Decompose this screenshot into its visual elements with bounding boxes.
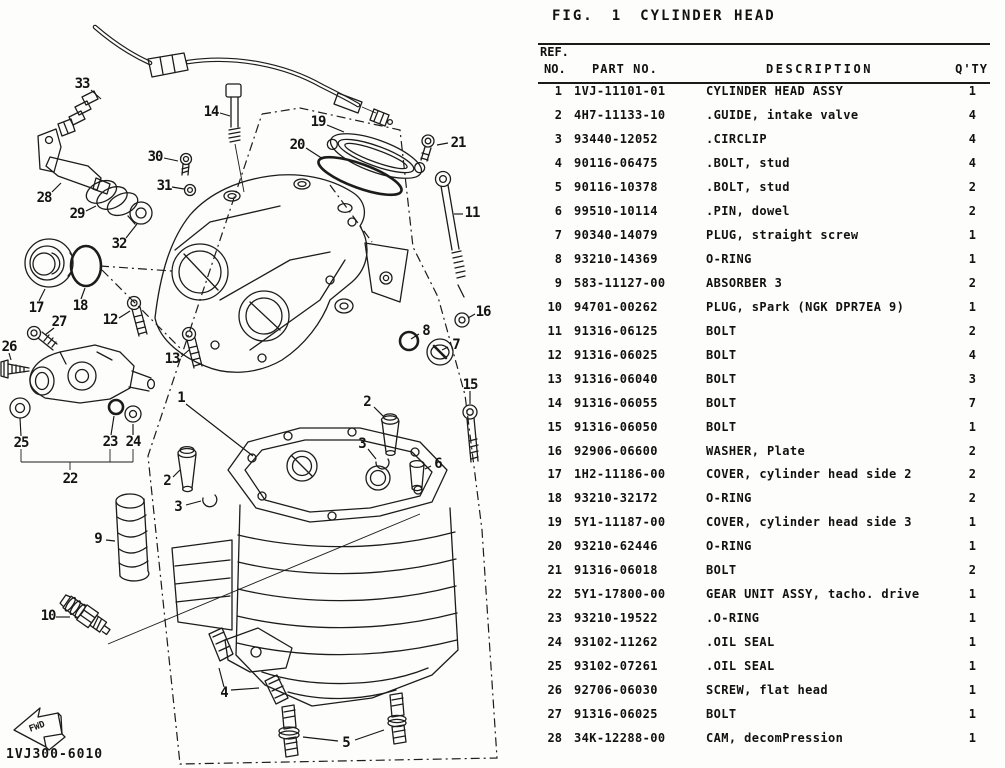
callout-label-14: 14 (204, 105, 219, 119)
table-row: 24H7-11133-10.GUIDE, intake valve4 (538, 103, 990, 127)
header-part-no: PART NO. (592, 62, 658, 76)
ref-cell: 26 (538, 683, 562, 697)
callout-label-18: 18 (73, 299, 88, 313)
part-cell: 5Y1-11187-00 (574, 515, 702, 529)
ref-cell: 20 (538, 539, 562, 553)
ref-cell: 28 (538, 731, 562, 745)
qty-cell: 4 (950, 108, 976, 122)
part-cell: 34K-12288-00 (574, 731, 702, 745)
callout-label-23: 23 (103, 435, 118, 449)
part-cell: 93102-07261 (574, 659, 702, 673)
table-row: 225Y1-17800-00GEAR UNIT ASSY, tacho. dri… (538, 582, 990, 606)
callout-label-8: 8 (422, 324, 429, 338)
drawing-code: 1VJ300-6010 (6, 747, 103, 762)
desc-cell: BOLT (706, 348, 950, 362)
figure-title: FIG.1CYLINDER HEAD (552, 8, 776, 24)
desc-cell: WASHER, Plate (706, 444, 950, 458)
part-cell: 99510-10114 (574, 204, 702, 218)
callout-label-2: 2 (363, 395, 370, 409)
qty-cell: 2 (950, 276, 976, 290)
screw-26 (1, 360, 29, 378)
qty-cell: 2 (950, 204, 976, 218)
part-cell: 90116-10378 (574, 180, 702, 194)
ref-cell: 19 (538, 515, 562, 529)
table-row: 1191316-06125BOLT2 (538, 319, 990, 343)
callout-label-32: 32 (112, 237, 127, 251)
bolt-27 (28, 327, 58, 351)
qty-cell: 1 (950, 611, 976, 625)
spring-29 (83, 170, 142, 226)
desc-cell: CAM, decomPression (706, 731, 950, 745)
absorber-9 (116, 494, 149, 581)
washer-16 (455, 313, 469, 327)
desc-cell: BOLT (706, 563, 950, 577)
callout-label-10: 10 (41, 609, 56, 623)
part-cell: 91316-06025 (574, 348, 702, 362)
desc-cell: O-RING (706, 491, 950, 505)
table-row: 1491316-06055BOLT7 (538, 391, 990, 415)
table-row: 2834K-12288-00CAM, decomPression1 (538, 726, 990, 750)
qty-cell: 1 (950, 515, 976, 529)
ref-cell: 5 (538, 180, 562, 194)
callout-label-3: 3 (358, 437, 365, 451)
callout-label-9: 9 (94, 532, 101, 546)
table-row: 171H2-11186-00COVER, cylinder head side … (538, 463, 990, 487)
qty-cell: 4 (950, 132, 976, 146)
ref-cell: 11 (538, 324, 562, 338)
desc-cell: BOLT (706, 372, 950, 386)
table-row: 699510-10114.PIN, dowel2 (538, 199, 990, 223)
table-row: 2093210-62446O-RING1 (538, 534, 990, 558)
parts-rows: 11VJ-11101-01CYLINDER HEAD ASSY124H7-111… (538, 80, 990, 750)
part-cell: 91316-06125 (574, 324, 702, 338)
callout-label-28: 28 (37, 191, 52, 205)
ref-cell: 3 (538, 132, 562, 146)
part-cell: 90340-14079 (574, 228, 702, 242)
qty-cell: 2 (950, 444, 976, 458)
rocker-cover-housing (155, 175, 408, 372)
ref-cell: 23 (538, 611, 562, 625)
bolt-21 (421, 135, 434, 161)
stud-4b (265, 675, 288, 704)
stud-5b (388, 693, 406, 744)
cylinder-head-fins (236, 505, 458, 706)
o-ring-23 (109, 400, 123, 414)
qty-cell: 1 (950, 731, 976, 745)
qty-cell: 2 (950, 563, 976, 577)
part-cell: 93210-19522 (574, 611, 702, 625)
o-ring-8 (400, 332, 418, 350)
table-row: 590116-10378.BOLT, stud2 (538, 175, 990, 199)
desc-cell: .OIL SEAL (706, 635, 950, 649)
table-row: 11VJ-11101-01CYLINDER HEAD ASSY1 (538, 80, 990, 104)
desc-cell: .BOLT, stud (706, 156, 950, 170)
desc-cell: CYLINDER HEAD ASSY (706, 84, 950, 98)
decompression-lever (38, 129, 110, 194)
qty-cell: 1 (950, 252, 976, 266)
callout-label-25: 25 (14, 436, 29, 450)
qty-cell: 7 (950, 396, 976, 410)
table-row: 790340-14079PLUG, straight screw1 (538, 223, 990, 247)
desc-cell: BOLT (706, 707, 950, 721)
desc-cell: ABSORBER 3 (706, 276, 950, 290)
ref-cell: 13 (538, 372, 562, 386)
table-row: 1291316-06025BOLT4 (538, 343, 990, 367)
qty-cell: 1 (950, 635, 976, 649)
ref-cell: 25 (538, 659, 562, 673)
ref-cell: 22 (538, 587, 562, 601)
desc-cell: BOLT (706, 420, 950, 434)
bolt-30 (181, 154, 192, 176)
callout-label-24: 24 (126, 435, 141, 449)
oil-seal-24 (125, 406, 141, 422)
qty-cell: 1 (950, 84, 976, 98)
part-cell: 1H2-11186-00 (574, 467, 702, 481)
desc-cell: .PIN, dowel (706, 204, 950, 218)
callout-label-19: 19 (311, 115, 326, 129)
part-cell: 93210-32172 (574, 491, 702, 505)
fwd-arrow-icon: FWD (14, 708, 65, 750)
table-row: 893210-14369O-RING1 (538, 247, 990, 271)
screw-plug-7 (427, 339, 453, 365)
seal-32 (130, 202, 152, 224)
decompression-cable (58, 27, 392, 136)
ref-cell: 21 (538, 563, 562, 577)
part-cell: 4H7-11133-10 (574, 108, 702, 122)
desc-cell: GEAR UNIT ASSY, tacho. drive (706, 587, 950, 601)
ref-cell: 8 (538, 252, 562, 266)
table-row: 2593102-07261.OIL SEAL1 (538, 654, 990, 678)
desc-cell: BOLT (706, 396, 950, 410)
table-row: 1692906-06600WASHER, Plate2 (538, 439, 990, 463)
part-cell: 92906-06600 (574, 444, 702, 458)
part-cell: 90116-06475 (574, 156, 702, 170)
ref-cell: 16 (538, 444, 562, 458)
washer-31 (185, 185, 196, 196)
part-cell: 91316-06050 (574, 420, 702, 434)
desc-cell: O-RING (706, 539, 950, 553)
leader-lines (9, 90, 475, 741)
fig-label: FIG. (552, 8, 594, 24)
table-row: 2191316-06018BOLT2 (538, 558, 990, 582)
valve-guide-2-left (178, 447, 196, 492)
table-row: 195Y1-11187-00COVER, cylinder head side … (538, 510, 990, 534)
ref-cell: 17 (538, 467, 562, 481)
part-cell: 1VJ-11101-01 (574, 84, 702, 98)
ref-cell: 12 (538, 348, 562, 362)
callout-label-4: 4 (220, 686, 227, 700)
callout-label-33: 33 (75, 77, 90, 91)
callout-label-29: 29 (70, 207, 85, 221)
header-ref-line1: REF. (540, 45, 569, 59)
table-row: 2791316-06025BOLT1 (538, 702, 990, 726)
o-ring-20 (315, 150, 406, 203)
ref-cell: 24 (538, 635, 562, 649)
ref-cell: 6 (538, 204, 562, 218)
tacho-gear-unit-22 (30, 345, 155, 403)
ref-cell: 18 (538, 491, 562, 505)
qty-cell: 1 (950, 228, 976, 242)
desc-cell: COVER, cylinder head side 3 (706, 515, 950, 529)
callout-label-27: 27 (52, 315, 67, 329)
header-ref-line2: NO. (544, 62, 566, 76)
cylinder-head-deck (228, 428, 447, 522)
callout-label-2: 2 (163, 474, 170, 488)
header-qty: Q'TY (955, 62, 988, 76)
qty-cell: 1 (950, 420, 976, 434)
table-row: 393440-12052.CIRCLIP4 (538, 127, 990, 151)
stud-5a (279, 705, 299, 757)
table-row: 2393210-19522.O-RING1 (538, 606, 990, 630)
desc-cell: PLUG, sPark (NGK DPR7EA 9) (706, 300, 950, 314)
qty-cell: 4 (950, 348, 976, 362)
part-cell: 93210-14369 (574, 252, 702, 266)
bolt-15 (463, 405, 478, 462)
qty-cell: 1 (950, 707, 976, 721)
ref-cell: 2 (538, 108, 562, 122)
side-cover-17 (25, 239, 73, 287)
callout-label-26: 26 (2, 340, 17, 354)
part-cell: 93440-12052 (574, 132, 702, 146)
part-cell: 92706-06030 (574, 683, 702, 697)
callout-label-5: 5 (342, 736, 349, 750)
desc-cell: .CIRCLIP (706, 132, 950, 146)
callout-label-7: 7 (452, 338, 459, 352)
bolt-13 (183, 328, 203, 369)
ref-cell: 1 (538, 84, 562, 98)
table-row: 1094701-00262PLUG, sPark (NGK DPR7EA 9)1 (538, 295, 990, 319)
part-cell: 583-11127-00 (574, 276, 702, 290)
part-cell: 91316-06055 (574, 396, 702, 410)
table-row: 1391316-06040BOLT3 (538, 367, 990, 391)
head-cover-plate-19 (324, 124, 429, 188)
callout-label-3: 3 (174, 500, 181, 514)
callout-label-16: 16 (476, 305, 491, 319)
table-row: 490116-06475.BOLT, stud4 (538, 151, 990, 175)
callout-label-1: 1 (177, 391, 184, 405)
qty-cell: 4 (950, 156, 976, 170)
ref-cell: 9 (538, 276, 562, 290)
desc-cell: BOLT (706, 324, 950, 338)
stud-4a (209, 628, 233, 661)
qty-cell: 2 (950, 467, 976, 481)
part-cell: 91316-06018 (574, 563, 702, 577)
callout-label-12: 12 (103, 313, 118, 327)
ref-cell: 14 (538, 396, 562, 410)
callout-label-15: 15 (463, 378, 478, 392)
desc-cell: PLUG, straight screw (706, 228, 950, 242)
qty-cell: 1 (950, 683, 976, 697)
qty-cell: 1 (950, 587, 976, 601)
ref-cell: 15 (538, 420, 562, 434)
desc-cell: SCREW, flat head (706, 683, 950, 697)
qty-cell: 2 (950, 324, 976, 338)
diagram-area: FWD 1VJ300-6010 331419202130312829321117… (0, 0, 535, 768)
desc-cell: .GUIDE, intake valve (706, 108, 950, 122)
table-row: 2493102-11262.OIL SEAL1 (538, 630, 990, 654)
bolt-14 (226, 84, 244, 192)
desc-cell: .BOLT, stud (706, 180, 950, 194)
fig-name: CYLINDER HEAD (640, 8, 776, 24)
callout-bracket-22 (21, 449, 133, 470)
qty-cell: 1 (950, 300, 976, 314)
part-cell: 5Y1-17800-00 (574, 587, 702, 601)
table-row: 1591316-06050BOLT1 (538, 415, 990, 439)
ref-cell: 27 (538, 707, 562, 721)
fwd-arrow-label: FWD (28, 720, 47, 735)
qty-cell: 1 (950, 539, 976, 553)
ref-cell: 4 (538, 156, 562, 170)
exploded-view-drawing: FWD (0, 0, 535, 768)
desc-cell: COVER, cylinder head side 2 (706, 467, 950, 481)
table-row: 2692706-06030SCREW, flat head1 (538, 678, 990, 702)
bolt-12 (128, 297, 148, 337)
table-top-rule (538, 43, 990, 45)
spark-plug-10 (58, 592, 114, 639)
part-cell: 94701-00262 (574, 300, 702, 314)
table-row: 9583-11127-00ABSORBER 32 (538, 271, 990, 295)
qty-cell: 1 (950, 659, 976, 673)
part-cell: 91316-06025 (574, 707, 702, 721)
qty-cell: 3 (950, 372, 976, 386)
oil-seal-25 (10, 398, 30, 418)
circlip-3-left (203, 495, 217, 507)
bolt-11 (436, 172, 466, 298)
callout-label-31: 31 (157, 179, 172, 193)
callout-label-21: 21 (451, 136, 466, 150)
callout-label-30: 30 (148, 150, 163, 164)
callout-label-13: 13 (165, 352, 180, 366)
o-ring-18 (71, 246, 101, 286)
desc-cell: .OIL SEAL (706, 659, 950, 673)
callout-label-11: 11 (465, 206, 480, 220)
desc-cell: O-RING (706, 252, 950, 266)
qty-cell: 2 (950, 180, 976, 194)
table-row: 1893210-32172O-RING2 (538, 486, 990, 510)
part-cell: 93210-62446 (574, 539, 702, 553)
callout-label-17: 17 (29, 301, 44, 315)
ref-cell: 10 (538, 300, 562, 314)
qty-cell: 2 (950, 491, 976, 505)
parts-table: FIG.1CYLINDER HEAD REF. NO. PART NO. DES… (538, 0, 998, 768)
ref-cell: 7 (538, 228, 562, 242)
callout-label-6: 6 (434, 457, 441, 471)
callout-label-22: 22 (63, 472, 78, 486)
fig-number: 1 (612, 8, 622, 24)
header-description: DESCRIPTION (766, 62, 873, 76)
parts-catalog-page: FWD 1VJ300-6010 331419202130312829321117… (0, 0, 1005, 768)
desc-cell: .O-RING (706, 611, 950, 625)
part-cell: 91316-06040 (574, 372, 702, 386)
callout-label-20: 20 (290, 138, 305, 152)
part-cell: 93102-11262 (574, 635, 702, 649)
